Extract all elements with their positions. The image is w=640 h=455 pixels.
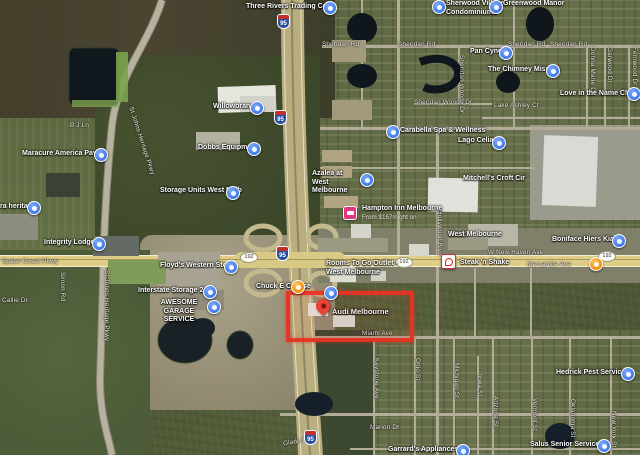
building-bigbox-store (542, 135, 598, 207)
road-label-marion-dr: Marion Dr (370, 424, 399, 431)
road-label-garwood: Garwood Dr (606, 47, 613, 83)
poi-pin-love-name-christ[interactable] (627, 87, 640, 101)
pond-dirt-2 (227, 331, 253, 359)
poi-label-pan-cync[interactable]: Pan Cync (470, 48, 502, 57)
road-label-newyork: New York St (610, 411, 617, 448)
road-label-space-coast: Space Coast Pkwy (2, 258, 58, 265)
parking-lot (318, 238, 388, 252)
apartment-block (332, 100, 372, 120)
pond-sherwood-2 (347, 64, 377, 88)
pond-northwest (69, 48, 119, 105)
road-label-hollywood: Hollywood Blvd (436, 210, 443, 256)
poi-label-carabella-spa[interactable]: Carabella Spa & Wellness (400, 127, 485, 136)
road-label-lake-ashley: Lake Ashley Ct (494, 102, 539, 109)
poi-pin-awesome-garage[interactable] (207, 300, 221, 314)
poi-pin-integrity[interactable] (92, 237, 106, 251)
poi-pin-maracure[interactable] (94, 148, 108, 162)
road-label-keystone: Keystone Ave (373, 358, 380, 399)
poi-label-greenwood-manor[interactable]: Greenwood Manor (503, 0, 564, 9)
road-label-new-haven: W New Haven Ave (488, 249, 543, 256)
poi-label-rooms-to-go[interactable]: Rooms To Go Outlet - West Melbourne (326, 260, 404, 277)
road-label-oklahoma: Oklahoma St (569, 399, 576, 438)
pond-sherwood-1 (347, 13, 377, 43)
poi-pin-carabella[interactable] (386, 125, 400, 139)
poi-label-west-melbourne[interactable]: West Melbourne (448, 231, 502, 240)
building (409, 244, 429, 256)
road-label-bj-ln: B J Ln (70, 122, 89, 129)
road-label-michigan: Michigan St (453, 363, 460, 398)
poi-label-integrity-lodge[interactable]: Integrity Lodge (44, 239, 95, 248)
poi-pin-dobbs[interactable] (247, 142, 261, 156)
algae-strip (116, 52, 128, 102)
ramp-nw (246, 226, 280, 250)
poi-pin-floyds[interactable] (224, 260, 238, 274)
poi-pin-pan-cync[interactable] (499, 46, 513, 60)
route-192-shield: 192 (240, 252, 258, 263)
steak-n-shake-logo-pin[interactable] (441, 254, 456, 269)
poi-pin-interstate-storage[interactable] (203, 285, 217, 299)
lawn-patch (108, 260, 166, 284)
poi-label-lago-celia[interactable]: Lago Celia (458, 137, 493, 146)
road-label-vermont: Vermont St (531, 398, 538, 431)
poi-pin-sherwood[interactable] (432, 0, 446, 14)
hotel-pin-hampton-inn[interactable] (343, 206, 357, 220)
road-label-donna-marie: Donna Marie Dr (589, 47, 596, 94)
road-label-sheridan: Sheridan Rd (508, 41, 545, 48)
i95-shield: 95 (277, 14, 290, 29)
i95-shield: 95 (274, 110, 287, 125)
road-label-sheridan: Sheridan Rd (398, 41, 435, 48)
highlight-rectangle (286, 291, 414, 342)
satellite-map[interactable]: 95 95 95 95 192 192 192 Sheridan Rd Sher… (0, 0, 640, 455)
poi-pin-greenwood[interactable] (489, 0, 503, 14)
poi-pin-willowbranch[interactable] (250, 101, 264, 115)
poi-label-azalea[interactable]: Azalea at West Melbourne (312, 170, 360, 196)
road-label-sheridan-woods: Sheridan Woods Dr (414, 99, 472, 106)
poi-pin-storage[interactable] (226, 186, 240, 200)
hotel-price-line: From $157/night on (362, 214, 417, 221)
parking-lot (448, 238, 488, 250)
poi-label-salus-senior[interactable]: Salus Senior Services (530, 441, 603, 450)
poi-label-three-rivers[interactable]: Three Rivers Trading Co (246, 3, 327, 12)
poi-pin-unlabeled[interactable] (324, 286, 338, 300)
road-label-ohio: Ohio St (414, 358, 421, 380)
building (46, 173, 80, 197)
pond-c-shape (420, 59, 458, 90)
road-label-sheridan: Sheridan Rd (550, 41, 587, 48)
poi-pin-orange-east[interactable] (589, 257, 603, 271)
road-label-callie-dr: Callie Dr (2, 297, 28, 304)
poi-label-hedrick-pest[interactable]: Hedrick Pest Service (556, 369, 625, 378)
hotel-label-hampton-inn[interactable]: Hampton Inn Melbourne (362, 205, 442, 214)
poi-label-floyds-western[interactable]: Floyd's Western Store (160, 262, 234, 271)
poi-label-steak-n-shake[interactable]: Steak 'n Shake (460, 259, 509, 268)
road-192-centerline (0, 259, 640, 260)
building (0, 214, 38, 240)
poi-pin-chimney-mission[interactable] (546, 64, 560, 78)
pond-south-1 (295, 392, 333, 416)
poi-pin-lago[interactable] (492, 136, 506, 150)
poi-pin-heritage[interactable] (27, 201, 41, 215)
poi-pin-three-rivers[interactable] (323, 1, 337, 15)
poi-label-awesome-garage[interactable]: AWESOME GARAGE SERVICE (150, 299, 208, 325)
i95-shield: 95 (276, 246, 289, 261)
road-label-mercantile: Mercantile Ave (527, 261, 571, 268)
poi-label-mitchells-croft[interactable]: Mitchell's Croft Cir (463, 175, 525, 184)
road-label-simon-rd: Simon Rd (59, 272, 66, 301)
poi-pin-kia[interactable] (612, 234, 626, 248)
road-label-arizona: Arizona St (492, 396, 499, 427)
poi-pin-orange-west[interactable] (291, 280, 305, 294)
poi-label-garrards[interactable]: Garrard's Appliances (388, 446, 458, 455)
poi-pin-salus[interactable] (597, 439, 611, 453)
i95-shield: 95 (304, 430, 317, 445)
road-label-heritage-pkwy: St Johns Heritage Pkwy (103, 270, 110, 341)
road-label-fernwood: Fernwood Dr (631, 47, 638, 86)
poi-pin-hedrick[interactable] (621, 367, 635, 381)
apartment-block (322, 150, 352, 162)
road-label-iowa: Iowa St (476, 374, 483, 396)
poi-pin-azalea[interactable] (360, 173, 374, 187)
road-label-sheridan: Sheridan Rd (322, 41, 359, 48)
poi-label-boniface-kia[interactable]: Boniface Hiers Kia (552, 236, 614, 245)
poi-pin-garrard[interactable] (456, 444, 470, 455)
algae-strip-2 (72, 100, 118, 107)
